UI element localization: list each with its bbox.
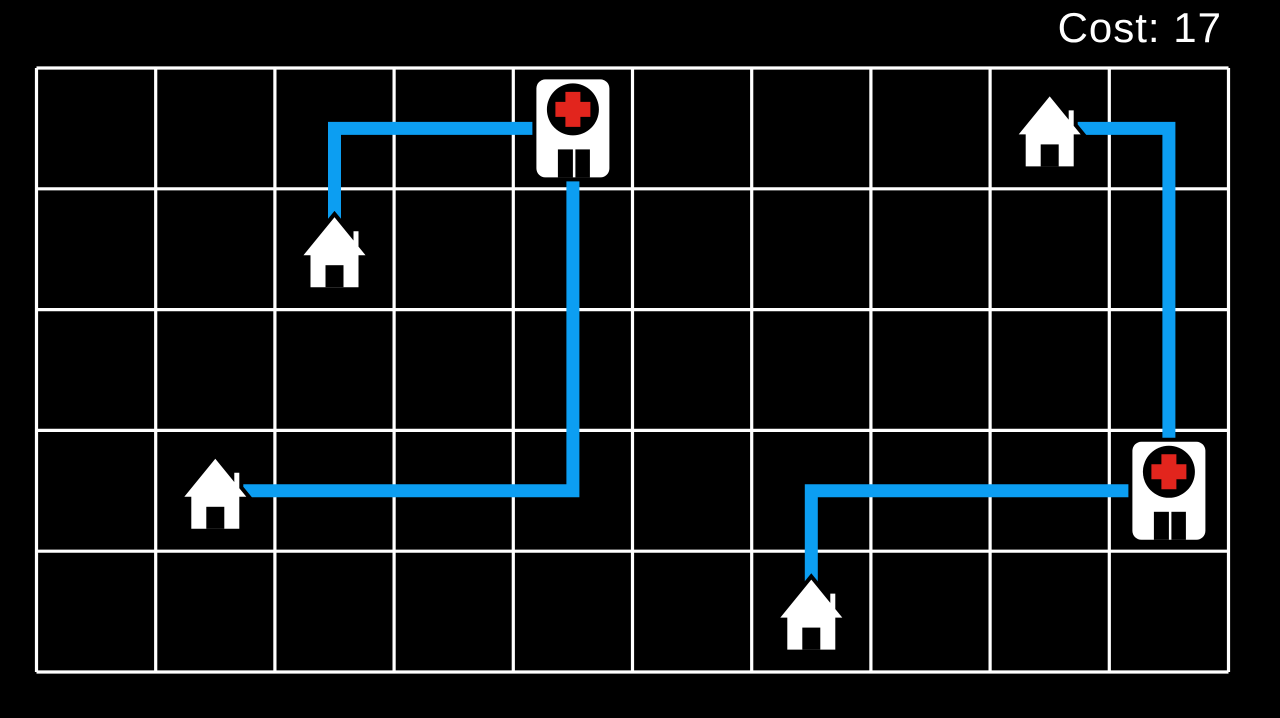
game-screen: Cost: 17 [0,0,1280,718]
house-door [326,265,344,287]
hospital-2[interactable] [1132,442,1205,540]
hospital-door-left [558,149,573,177]
hospital-door-right [575,149,590,177]
hospital-1[interactable] [536,79,609,177]
hospital-door-left [1154,512,1169,540]
house-1[interactable] [304,217,366,287]
road-paths [215,128,1169,611]
house-door [206,507,224,529]
house-4[interactable] [1019,96,1081,166]
hospital-door-right [1171,512,1186,540]
house-3[interactable] [780,580,842,650]
house-door [1041,144,1059,166]
house-2[interactable] [184,459,246,529]
game-board[interactable] [0,0,1280,718]
house-door [802,628,820,650]
